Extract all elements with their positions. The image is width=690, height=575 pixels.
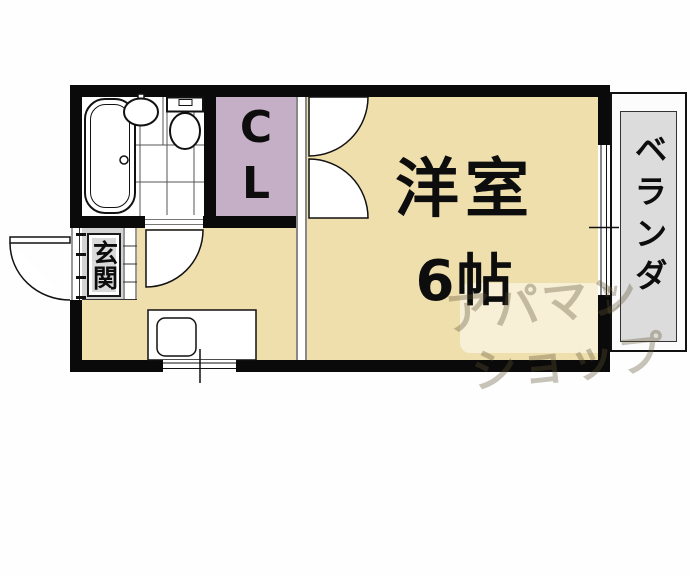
western-room-size-label: 6帖	[330, 236, 600, 317]
floor-plan-page: ベランダ	[0, 0, 690, 575]
kitchen-counter	[148, 310, 256, 360]
closet-letter-l: L	[218, 156, 294, 212]
closet-letter-c: C	[218, 100, 294, 156]
entrance-label: 玄関	[92, 240, 117, 290]
toilet	[167, 98, 203, 150]
entrance-door-arc	[10, 237, 70, 300]
entrance-doorway	[70, 228, 82, 300]
wash-basin	[124, 94, 158, 126]
bathroom-doorway	[145, 215, 203, 229]
western-room-label: 洋室	[330, 138, 600, 230]
closet-label: C L	[218, 100, 294, 212]
sliding-partition	[296, 97, 307, 360]
entrance-label-box: 玄関	[87, 233, 121, 297]
kitchen-sink	[157, 318, 196, 356]
bathroom-door-arc	[146, 230, 203, 287]
